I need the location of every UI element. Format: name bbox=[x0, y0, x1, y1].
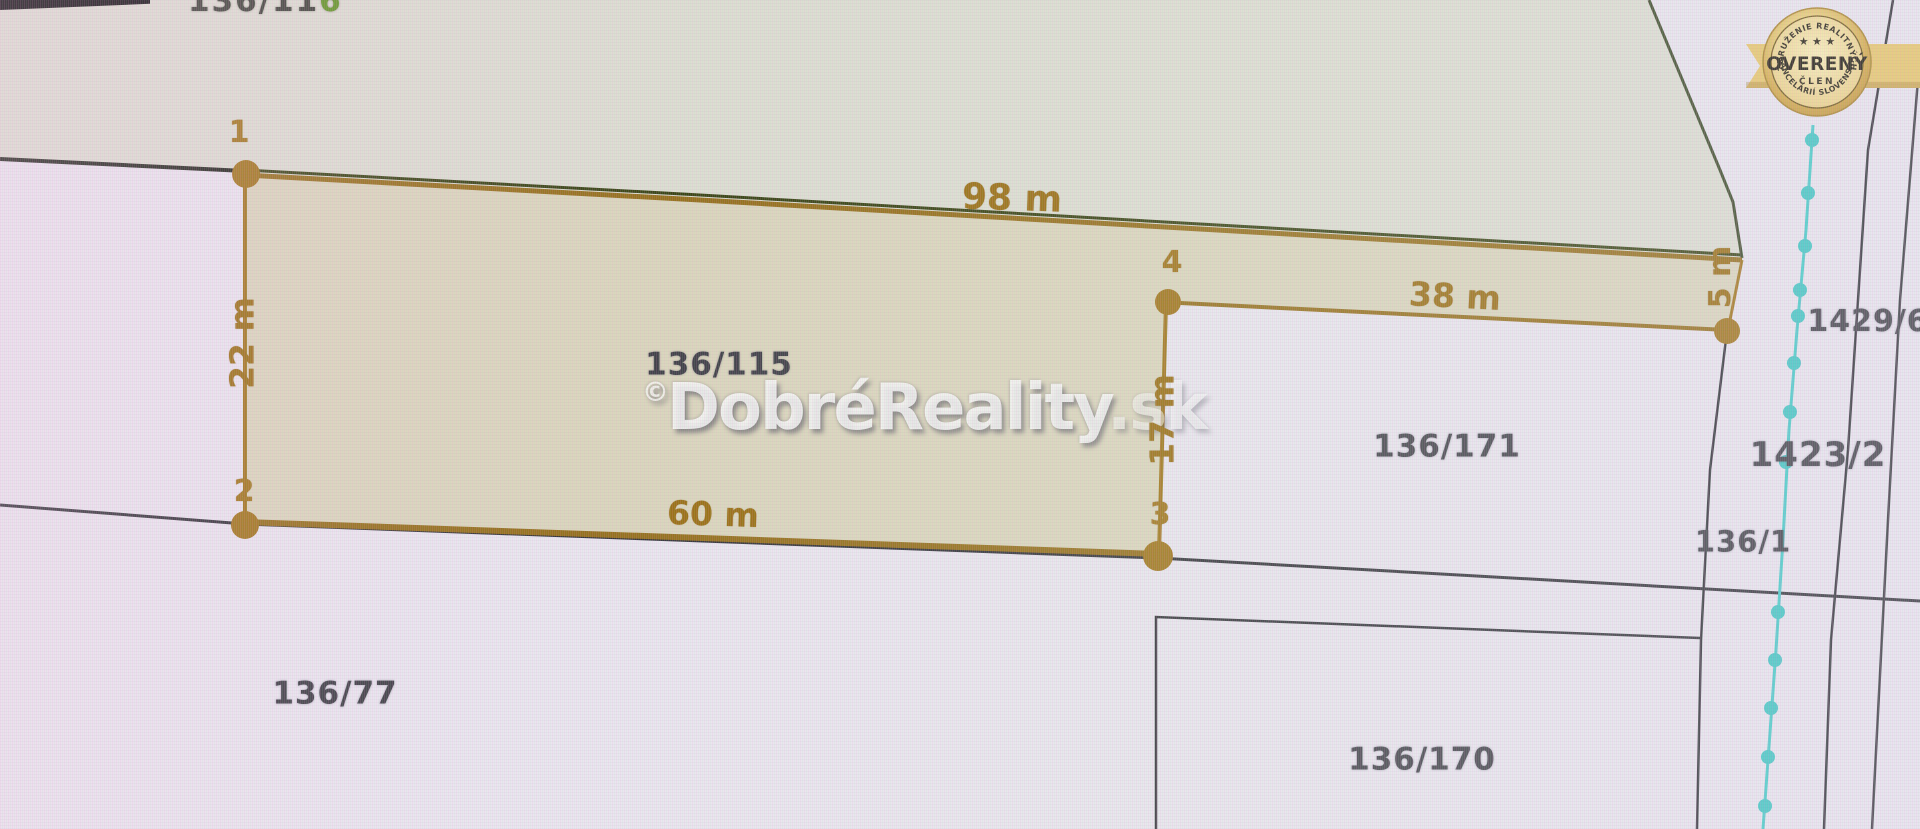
parcel-label-136-115: 136/115 bbox=[645, 350, 793, 381]
parcel-label-top-cut-prefix: 136/11 bbox=[188, 0, 319, 19]
parcel-label-136-1: 136/1 bbox=[1695, 528, 1791, 557]
measure-label-22m: 22 m bbox=[226, 297, 259, 389]
badge-subtitle: ČLEN bbox=[1799, 75, 1835, 87]
point-3-dot bbox=[1143, 541, 1173, 571]
parcel-label-136-171: 136/171 bbox=[1373, 432, 1521, 463]
measure-label-38m: 38 m bbox=[1408, 277, 1501, 315]
measure-label-60m: 60 m bbox=[667, 496, 760, 532]
verified-badge: ZDRUŽENIE REALITNÝCH ★ ★ ★ OVERENÝ ČLEN … bbox=[1740, 0, 1920, 140]
point-2-label: 2 bbox=[234, 477, 255, 507]
badge-stars: ★ ★ ★ bbox=[1799, 35, 1836, 48]
point-1-label: 1 bbox=[229, 118, 250, 148]
stream bbox=[1758, 125, 1819, 829]
parcel-label-top-cut: 136/116 bbox=[188, 0, 343, 19]
stream-line bbox=[1763, 125, 1813, 829]
point-3-label: 3 bbox=[1150, 500, 1171, 530]
measure-label-17m: 17 m bbox=[1146, 374, 1179, 466]
point-2-dot bbox=[231, 511, 259, 539]
measure-label-5m: 5 m bbox=[1706, 246, 1736, 309]
point-1-dot bbox=[232, 160, 260, 188]
parcel-label-136-170: 136/170 bbox=[1348, 745, 1496, 776]
measure-label-98m: 98 m bbox=[961, 179, 1062, 218]
cadastral-map-photo[interactable]: ©DobréReality.sk 136/115 136/171 136/77 … bbox=[0, 0, 1920, 829]
boundary-stream-side-lower bbox=[1697, 331, 1727, 829]
point-4-label: 4 bbox=[1162, 248, 1183, 278]
parcel-label-top-cut-suffix: 6 bbox=[319, 0, 343, 19]
parcel-label-136-77: 136/77 bbox=[272, 679, 397, 710]
parcel-label-1429-6: 1429/6 bbox=[1807, 307, 1920, 337]
point-4-dot bbox=[1155, 289, 1181, 315]
parcel-136-170-outline bbox=[1156, 617, 1700, 829]
parcel-label-1423-2: 1423/2 bbox=[1750, 438, 1887, 472]
right-corner-dot bbox=[1714, 318, 1740, 344]
